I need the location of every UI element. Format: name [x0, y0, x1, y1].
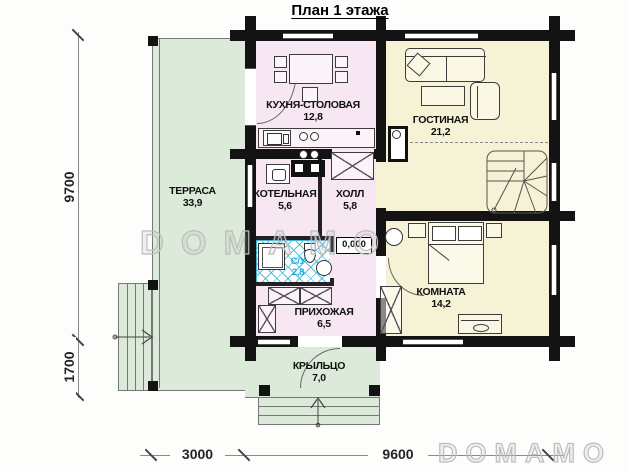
window-bedroom-south — [403, 339, 463, 345]
dresser — [458, 314, 502, 334]
nightstand — [486, 223, 502, 238]
partition-bathroom-bottom — [256, 282, 334, 286]
nightstand — [408, 223, 426, 238]
room-label-bathroom: С/У 2,8 — [283, 256, 313, 278]
window-bedroom-east — [551, 245, 557, 295]
watermark-bottom-right: DOMAMO — [438, 438, 612, 469]
dim-value: 9700 — [61, 171, 77, 202]
wardrobe — [331, 152, 374, 180]
room-name: КУХНЯ-СТОЛОВАЯ — [256, 99, 370, 111]
room-area: 5,6 — [252, 200, 318, 212]
boiler-unit-icon — [291, 160, 325, 177]
level-mark: 0,000 — [336, 237, 372, 254]
room-label-hall: ХОЛЛ 5,8 — [324, 188, 376, 212]
dining-table — [289, 54, 333, 84]
socket-dot — [356, 131, 360, 135]
room-name: ТЕРРАСА — [150, 185, 235, 197]
room-name: ГОСТИНАЯ — [398, 114, 483, 126]
dim-value: 1700 — [61, 351, 77, 382]
door-kitchen-terrace — [245, 68, 256, 126]
room-area: 5,8 — [324, 200, 376, 212]
room-area: 21,2 — [398, 126, 483, 138]
room-name: ПРИХОЖАЯ — [280, 306, 368, 318]
shower-icon — [258, 243, 285, 270]
wardrobe — [380, 286, 402, 334]
opening-hall-living — [376, 162, 386, 208]
door-entry-south — [298, 336, 342, 347]
stool-icon — [385, 228, 403, 246]
room-area: 7,0 — [275, 372, 363, 384]
coffee-table — [421, 86, 465, 106]
window-entry-south — [258, 339, 290, 345]
log-stub — [245, 347, 256, 361]
log-stub — [230, 336, 245, 347]
room-area: 14,2 — [400, 298, 482, 310]
utility-sink-icon — [266, 164, 290, 184]
log-stub — [549, 347, 560, 361]
room-name: КОТЕЛЬНАЯ — [252, 188, 318, 200]
post — [259, 385, 270, 396]
room-label-porch: КРЫЛЬЦО 7,0 — [275, 360, 363, 384]
log-stub — [376, 347, 386, 361]
room-label-terrace: ТЕРРАСА 33,9 — [150, 185, 235, 209]
dim-label-9600: 9600 — [368, 447, 428, 461]
room-label-kitchen: КУХНЯ-СТОЛОВАЯ 12,8 — [256, 99, 370, 123]
room-label-bedroom: КОМНАТА 14,2 — [400, 286, 482, 310]
washbasin-icon — [316, 260, 332, 276]
staircase — [486, 150, 548, 214]
chair — [335, 71, 348, 83]
wardrobe — [300, 287, 332, 305]
beam-dashed-line — [410, 142, 548, 143]
log-stub — [560, 30, 575, 41]
room-area: 12,8 — [256, 111, 370, 123]
wardrobe — [268, 287, 300, 305]
dim-value: 3000 — [182, 446, 213, 462]
log-stub — [230, 149, 245, 159]
dim-label-9700: 9700 — [62, 157, 76, 217]
log-stub — [230, 30, 245, 41]
dim-label-3000: 3000 — [170, 447, 225, 461]
page-title: План 1 этажа — [230, 2, 450, 19]
chair — [335, 56, 348, 68]
dim-label-1700: 1700 — [62, 337, 76, 397]
post — [148, 280, 158, 290]
log-stub — [560, 211, 575, 221]
room-name: КРЫЛЬЦО — [275, 360, 363, 372]
dim-value: 9600 — [382, 446, 413, 462]
post — [148, 36, 158, 46]
log-stub — [549, 16, 560, 30]
post — [369, 385, 380, 396]
room-name: ХОЛЛ — [324, 188, 376, 200]
chair — [274, 71, 287, 83]
level-mark-value: 0,000 — [342, 239, 366, 250]
window-living-north — [405, 33, 478, 39]
partition-bathroom-top — [256, 236, 334, 240]
terrace-entry-arrow-icon — [112, 328, 160, 346]
room-area: 2,8 — [283, 267, 313, 278]
stove-icon — [298, 129, 326, 147]
room-label-entry: ПРИХОЖАЯ 6,5 — [280, 306, 368, 330]
kitchen-sink-icon — [263, 130, 291, 146]
bed — [428, 222, 484, 284]
log-stub — [560, 336, 575, 347]
post — [148, 381, 158, 391]
window-kitchen-north — [283, 33, 333, 39]
wardrobe — [258, 305, 276, 333]
room-area: 6,5 — [280, 318, 368, 330]
room-name: КОМНАТА — [400, 286, 482, 298]
room-name: С/У — [283, 256, 313, 267]
room-area: 33,9 — [150, 197, 235, 209]
floor-plan: 0,000 ТЕРРАСА 33,9 КУХНЯ-СТОЛОВАЯ 12,8 — [0, 0, 627, 470]
room-label-boiler: КОТЕЛЬНАЯ 5,6 — [252, 188, 318, 212]
chair — [274, 56, 287, 68]
porch-entry-arrow-icon — [308, 396, 328, 428]
window-living-east — [551, 73, 557, 120]
room-label-living: ГОСТИНАЯ 21,2 — [398, 114, 483, 138]
window-stairs-east — [551, 163, 557, 201]
